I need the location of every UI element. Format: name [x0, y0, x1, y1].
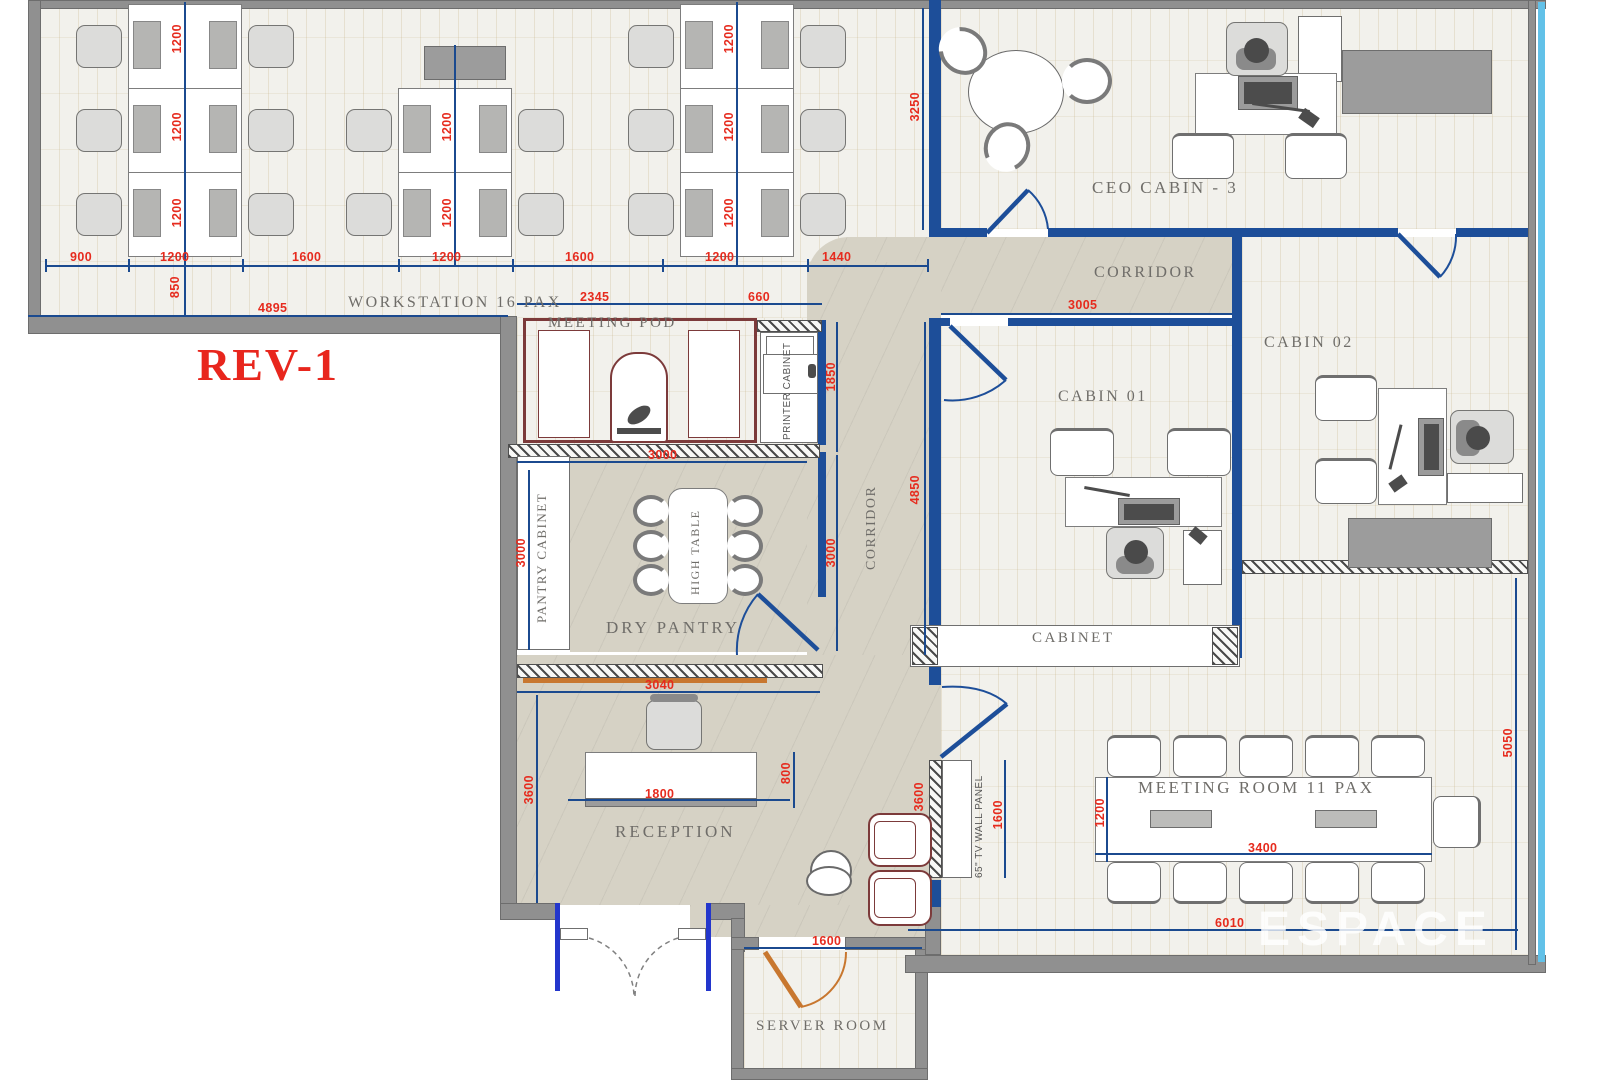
wall-server-bottom	[731, 1068, 928, 1080]
pantry-chair	[727, 495, 763, 527]
label-workstation: WORKSTATION 16 PAX	[348, 294, 562, 312]
hatch-pantry-bottom	[517, 664, 823, 678]
ceo-keyboard	[1244, 82, 1292, 104]
ceo-person-head	[1244, 38, 1269, 63]
cabin02-person-head	[1466, 426, 1490, 450]
desk-partition	[761, 21, 789, 69]
dim-tick	[45, 259, 47, 272]
dim-1200-meeting: 1200	[1093, 798, 1107, 827]
workstation-chair	[346, 193, 392, 236]
dim-1600-a: 1600	[292, 250, 321, 264]
entry-door-leaf-right	[678, 928, 706, 940]
dim-3250: 3250	[908, 92, 922, 121]
dim-col3-1200-2: 1200	[722, 112, 736, 141]
dim-660: 660	[748, 290, 770, 304]
dim-line-3250	[922, 8, 924, 230]
dim-3040: 3040	[645, 678, 674, 692]
hatch-printer-top	[757, 320, 822, 332]
meeting-chair	[1371, 735, 1425, 777]
reception-chair	[646, 700, 702, 750]
cabin01-guest-chair-1	[1050, 428, 1114, 476]
dim-line-2345	[517, 303, 822, 305]
meeting-chair	[1239, 862, 1293, 904]
dim-col2-1200-2: 1200	[440, 198, 454, 227]
label-meeting-room: MEETING ROOM 11 PAX	[1138, 778, 1375, 798]
label-reception: RECEPTION	[615, 822, 736, 842]
cabin02-credenza	[1348, 518, 1492, 568]
dim-col1-1200-3: 1200	[170, 198, 184, 227]
bluewall-cabin01-top	[1008, 318, 1232, 326]
desk-partition	[209, 189, 237, 237]
desk-partition	[685, 21, 713, 69]
dim-1440: 1440	[822, 250, 851, 264]
pantry-chair	[727, 530, 763, 562]
entry-door-leaf-left	[560, 928, 588, 940]
dim-col1-1200-2: 1200	[170, 112, 184, 141]
dim-tick	[512, 259, 514, 272]
entry-swing-right	[635, 938, 678, 997]
label-pantry-cabinet: PANTRY CABINET	[534, 478, 550, 623]
meeting-chair	[1371, 862, 1425, 904]
ceo-guest-chair-1	[1172, 133, 1234, 179]
desk-partition	[685, 105, 713, 153]
cabinet-band-hatch-right	[1212, 627, 1238, 665]
meeting-end-chair	[1433, 796, 1481, 848]
ceo-round-chair-2	[1062, 58, 1112, 104]
bluewall-pantry-right	[818, 452, 826, 597]
cabin01-person-head	[1124, 540, 1148, 564]
pantry-chair	[633, 564, 669, 596]
workstation-chair	[248, 109, 294, 152]
desk-partition	[133, 21, 161, 69]
label-high-table: HIGH TABLE	[688, 500, 703, 595]
dim-line-top-chain	[45, 265, 929, 267]
dim-5050: 5050	[1501, 728, 1515, 757]
reception-sofa-2-seat	[874, 878, 916, 918]
cabin01-guest-chair-2	[1167, 428, 1231, 476]
cabin02-keyboard	[1424, 424, 1439, 470]
bluewall-ceo-left	[929, 0, 941, 237]
wall-reception-bottom-left	[500, 903, 557, 920]
meeting-chair	[1173, 735, 1227, 777]
cabin02-side-table	[1447, 473, 1523, 503]
dim-col2-1200-1: 1200	[440, 112, 454, 141]
desk-partition	[479, 189, 507, 237]
dim-col3-1200-3: 1200	[722, 198, 736, 227]
wall-right-outer	[1528, 0, 1536, 965]
dim-850: 850	[168, 276, 182, 298]
dim-4895: 4895	[258, 301, 287, 315]
dim-line-3600-rec	[536, 695, 538, 903]
dim-tick	[242, 259, 244, 272]
ceo-credenza	[1342, 50, 1492, 114]
meeting-chair	[1305, 735, 1359, 777]
desk-partition	[761, 189, 789, 237]
label-cabin-01: CABIN 01	[1058, 388, 1148, 406]
dim-line-4850	[924, 322, 926, 655]
bluewall-corridor-top-a	[941, 228, 987, 237]
dim-1800: 1800	[645, 787, 674, 801]
desk-partition	[133, 189, 161, 237]
pod-person-base	[617, 428, 661, 434]
pod-bench-left	[538, 330, 590, 438]
workstation-chair	[628, 109, 674, 152]
dim-line-800	[793, 752, 795, 808]
workstation-chair	[800, 25, 846, 68]
dim-col3-1200-1: 1200	[722, 24, 736, 53]
dim-1850: 1850	[824, 362, 838, 391]
label-ceo-cabin: CEO CABIN - 3	[1092, 178, 1238, 198]
workstation-chair	[518, 193, 564, 236]
desk-partition	[479, 105, 507, 153]
cabin01-keyboard	[1124, 504, 1174, 520]
dim-1200-a: 1200	[160, 250, 189, 264]
bluewall-cabin01-left	[929, 318, 941, 658]
dim-900: 900	[70, 250, 92, 264]
label-printer-cabinet: PRINTER CABINET	[782, 342, 793, 440]
hatch-tv-wall	[929, 760, 942, 878]
dim-3600-tv: 3600	[912, 782, 926, 811]
workstation-chair	[248, 25, 294, 68]
label-cabinet: CABINET	[1032, 630, 1115, 647]
reception-sofa-1-seat	[874, 821, 916, 859]
pantry-chair	[727, 564, 763, 596]
bluewall-cabin01-top-stub	[941, 318, 950, 326]
desk-partition	[403, 105, 431, 153]
desk-partition	[133, 105, 161, 153]
desk-partition	[761, 105, 789, 153]
dim-3005: 3005	[1068, 298, 1097, 312]
pod-bench-right	[688, 330, 740, 438]
entry-swing-left	[589, 938, 634, 997]
wall-workstation-bottom	[28, 316, 517, 334]
server-room-floor	[744, 950, 915, 1070]
reception-side-table-2	[806, 866, 852, 896]
dim-6010: 6010	[1215, 916, 1244, 930]
desk-partition	[403, 189, 431, 237]
dim-3000-left: 3000	[514, 538, 528, 567]
tv-panel	[942, 760, 972, 878]
label-dry-pantry: DRY PANTRY	[606, 618, 740, 638]
workstation-chair	[518, 109, 564, 152]
meeting-chair	[1305, 862, 1359, 904]
meeting-cable-tray-1	[1150, 810, 1212, 828]
workstation-chair	[628, 193, 674, 236]
dim-1600-server: 1600	[812, 934, 841, 948]
workstation-credenza	[424, 46, 506, 80]
dim-3000-right: 3000	[824, 538, 838, 567]
label-cabin-02: CABIN 02	[1264, 334, 1354, 352]
dim-tick	[927, 259, 929, 272]
desk-partition	[209, 21, 237, 69]
glass-wall-right	[1538, 2, 1545, 962]
dim-line-4895	[28, 315, 508, 317]
revision-label: REV-1	[197, 338, 339, 391]
dim-col1-1200-1: 1200	[170, 24, 184, 53]
label-meeting-pod: MEETING POD	[548, 315, 677, 332]
wall-meeting-bottom	[905, 955, 1546, 973]
label-corridor-v: CORRIDOR	[864, 478, 880, 570]
cabin02-guest-chair-2	[1315, 458, 1377, 504]
dim-1200-b: 1200	[432, 250, 461, 264]
dim-line-3000-left	[528, 470, 530, 650]
dim-line-col1	[184, 2, 186, 316]
wall-left-mid	[500, 316, 517, 920]
dim-4850: 4850	[908, 475, 922, 504]
dim-3000-top: 3000	[648, 448, 677, 462]
meeting-chair	[1173, 862, 1227, 904]
dim-line-3005	[941, 313, 1232, 315]
meeting-chair	[1107, 862, 1161, 904]
wall-left	[28, 0, 41, 318]
bluewall-cabin-divider	[1232, 228, 1242, 658]
reception-chair-back	[650, 694, 698, 702]
dim-line-1800	[568, 799, 790, 801]
dim-tick	[128, 259, 130, 272]
dim-1600-b: 1600	[565, 250, 594, 264]
entry-door-jamb-left	[555, 903, 560, 991]
label-server-room: SERVER ROOM	[756, 1018, 889, 1035]
meeting-chair	[1107, 735, 1161, 777]
workstation-chair	[248, 193, 294, 236]
meeting-chair	[1239, 735, 1293, 777]
entry-door-jamb-right	[706, 903, 711, 991]
dim-1200-c: 1200	[705, 250, 734, 264]
workstation-chair	[628, 25, 674, 68]
floor-plan: 900 1200 1600 1200 1600 1200 1440 1200 1…	[0, 0, 1620, 1080]
pantry-chair	[633, 495, 669, 527]
dim-3400: 3400	[1248, 841, 1277, 855]
watermark: ESPACE	[1258, 902, 1494, 957]
ceo-guest-chair-2	[1285, 133, 1347, 179]
dim-800: 800	[779, 762, 793, 784]
workstation-chair	[346, 109, 392, 152]
dim-tick	[662, 259, 664, 272]
printer-knob	[808, 364, 816, 378]
wall-server-left	[731, 937, 744, 1080]
desk-partition	[685, 189, 713, 237]
workstation-chair	[76, 193, 122, 236]
workstation-chair	[76, 25, 122, 68]
dim-line-5050	[1515, 578, 1517, 950]
desk-partition	[209, 105, 237, 153]
dim-line-col3	[736, 2, 738, 266]
dim-1600-tv: 1600	[991, 800, 1005, 829]
bluewall-corridor-top-c	[1456, 228, 1528, 237]
dim-tick	[807, 259, 809, 272]
bluewall-corridor-top-b	[1048, 228, 1398, 237]
dim-3600-reception: 3600	[522, 775, 536, 804]
cabin02-guest-chair-1	[1315, 375, 1377, 421]
meeting-cable-tray-2	[1315, 810, 1377, 828]
dim-2345: 2345	[580, 290, 609, 304]
workstation-chair	[76, 109, 122, 152]
pantry-chair	[633, 530, 669, 562]
label-tv-panel: 65" TV WALL PANEL	[974, 762, 985, 878]
dim-line-col2	[454, 45, 456, 266]
workstation-chair	[800, 193, 846, 236]
workstation-chair	[800, 109, 846, 152]
label-corridor-h: CORRIDOR	[1094, 264, 1197, 282]
dim-tick	[398, 259, 400, 272]
